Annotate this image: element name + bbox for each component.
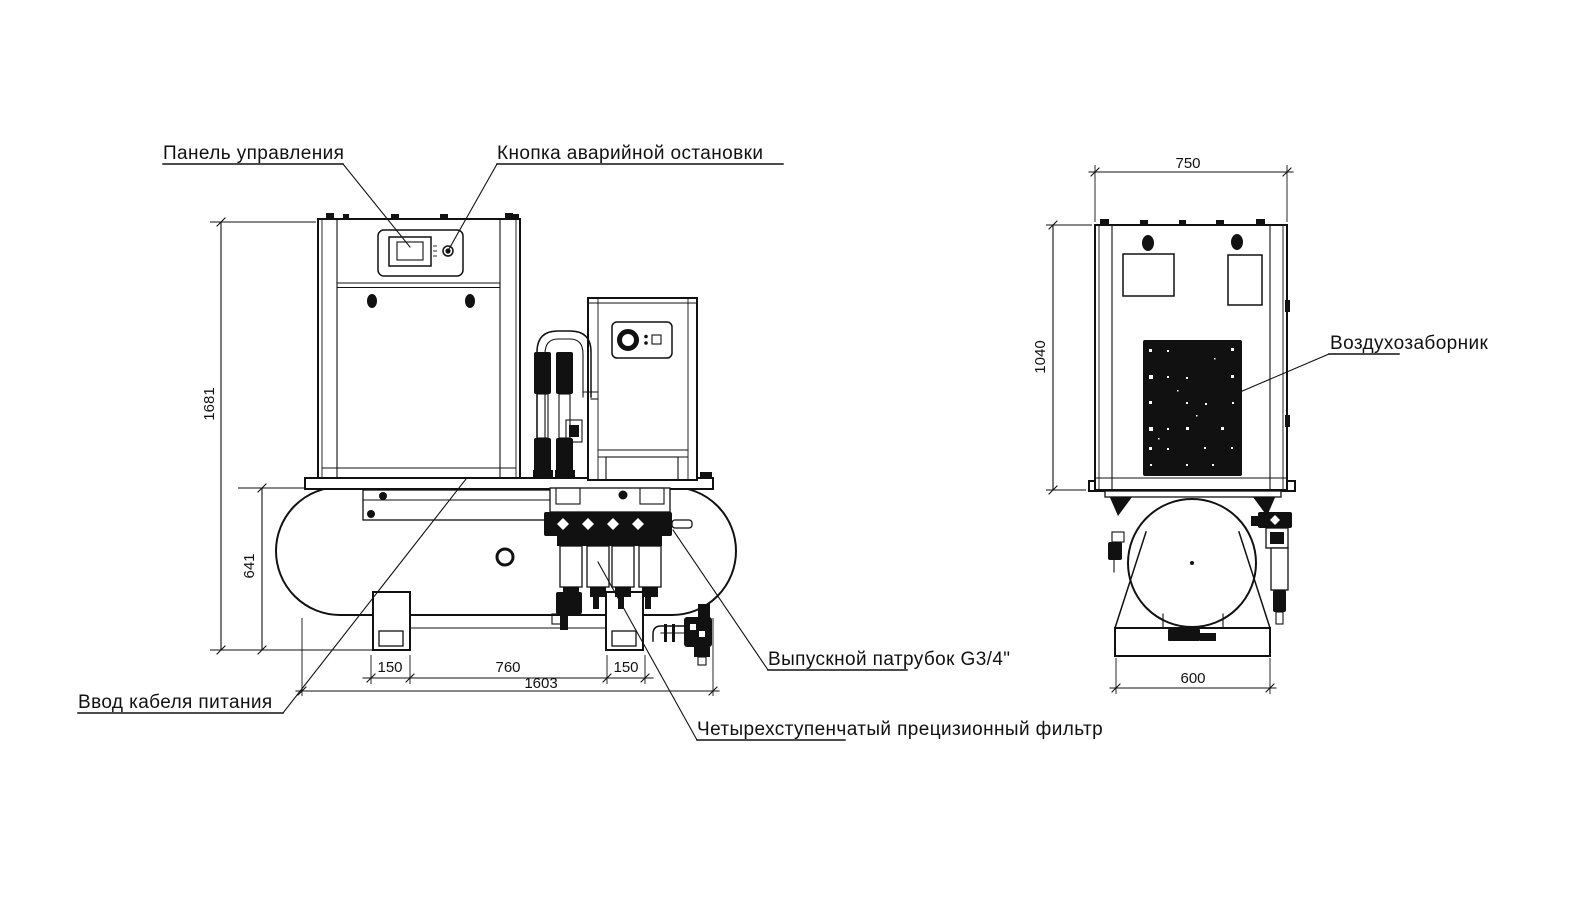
- label-control-panel: Панель управления: [163, 143, 344, 164]
- label-emergency-stop: Кнопка аварийной остановки: [497, 143, 763, 164]
- door-handle: [367, 294, 377, 308]
- label-outlet-port: Выпускной патрубок G3/4": [768, 649, 1010, 670]
- dim-left-foot: 150: [377, 659, 402, 676]
- filter-bowl: [612, 546, 634, 587]
- filter-bowl: [587, 546, 609, 587]
- compressor-dimensional-drawing: 1681 641 150 760 150: [0, 0, 1571, 910]
- side-view: 750 1040 600 Воздухозаборник: [1032, 155, 1489, 694]
- side-filter-regulator: [1251, 512, 1292, 624]
- dimension-side-width: 750: [1089, 155, 1293, 222]
- dim-feet-spacing: 760: [495, 659, 520, 676]
- label-precision-filter: Четырехступенчатый прецизионный фильтр: [697, 719, 1103, 740]
- foot-right: [606, 592, 643, 650]
- foot-left: [373, 592, 410, 650]
- dim-tank-height: 641: [241, 553, 258, 578]
- side-handle: [1231, 234, 1243, 250]
- dryer-unit: [588, 298, 697, 480]
- outlet-spigot: [672, 520, 692, 528]
- label-power-cable-entry: Ввод кабеля питания: [78, 692, 273, 713]
- technical-drawing-page: 1681 641 150 760 150: [0, 0, 1571, 910]
- mounting-plate: [363, 490, 553, 520]
- side-handle: [1142, 235, 1154, 251]
- dimension-side-base: 600: [1110, 658, 1276, 694]
- side-left-fitting: [1108, 532, 1124, 572]
- dim-overall-length: 1603: [524, 675, 557, 692]
- dim-overall-height: 1681: [201, 387, 218, 420]
- compressor-cabinet: [318, 213, 520, 478]
- door-handle: [465, 294, 475, 308]
- filter-bowl: [639, 546, 661, 587]
- filter-bowl: [560, 546, 582, 587]
- front-view: 1681 641 150 760 150: [78, 143, 1103, 740]
- dim-side-width: 750: [1175, 155, 1200, 172]
- label-air-intake: Воздухозаборник: [1330, 333, 1489, 354]
- dimension-feet: 150 760 150: [363, 655, 653, 684]
- dimension-overall-length: 1603: [296, 618, 719, 696]
- dimension-side-height: 1040: [1032, 221, 1092, 494]
- dim-side-base: 600: [1180, 670, 1205, 687]
- air-intake-grille: [1143, 340, 1242, 476]
- dim-right-foot: 150: [613, 659, 638, 676]
- dim-side-height: 1040: [1032, 340, 1049, 373]
